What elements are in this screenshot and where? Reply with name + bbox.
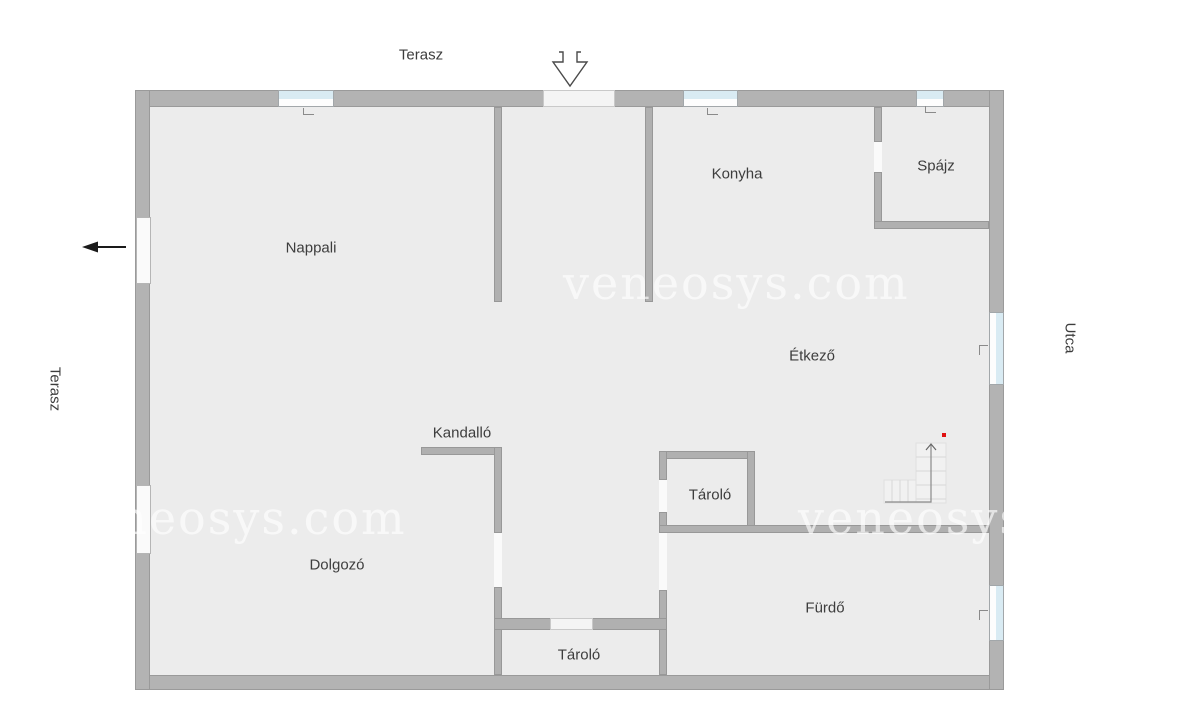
window-handle-icon (979, 610, 988, 620)
arrow-left-icon (82, 240, 128, 254)
room-label-living: Nappali (286, 240, 337, 257)
entrance-arrow-icon (548, 50, 592, 90)
interior-wall-center-vertical (494, 447, 502, 533)
exterior-wall-bottom (135, 675, 1004, 690)
exterior-wall-left (135, 90, 150, 690)
interior-wall-bathroom-left (659, 590, 667, 675)
window-handle-icon (979, 345, 988, 355)
label-terrace-left: Terasz (47, 367, 64, 411)
interior-wall-storage-top (659, 451, 755, 459)
room-label-fireplace: Kandalló (433, 425, 491, 442)
red-dot (942, 433, 946, 437)
window-top-left (278, 90, 334, 107)
label-street: Utca (1062, 323, 1079, 354)
storage-door-opening (659, 480, 667, 512)
storage-bottom-door-opening (550, 618, 593, 630)
window-dining (989, 312, 1004, 385)
interior-wall-storage-left (659, 451, 667, 480)
window-handle-icon (925, 106, 936, 113)
room-label-kitchen: Konyha (712, 166, 763, 183)
interior-wall-hall-left (494, 107, 502, 302)
window-bathroom (989, 585, 1004, 641)
window-pantry (916, 90, 944, 107)
interior-wall-fireplace (421, 447, 502, 455)
interior-wall-center-vertical (494, 587, 502, 675)
floor-plan-canvas: Nappali Konyha Spájz Étkező Kandalló Tár… (0, 0, 1187, 721)
interior-wall-pantry-left (874, 107, 882, 142)
interior-wall-pantry-bottom (874, 221, 989, 229)
pantry-door-opening (874, 142, 882, 172)
room-label-dining: Étkező (789, 348, 835, 365)
room-label-bathroom: Fürdő (805, 600, 844, 617)
entrance-door-opening (543, 90, 615, 107)
label-terrace-top: Terasz (399, 47, 443, 64)
interior-wall-bathroom-top (659, 525, 989, 533)
bathroom-door-opening (659, 533, 667, 590)
room-label-study: Dolgozó (309, 557, 364, 574)
terrace-door-opening (136, 217, 151, 284)
interior-wall-storage-right (747, 451, 755, 533)
window-handle-icon (303, 108, 314, 115)
window-study (136, 485, 151, 554)
floor-area (150, 107, 989, 675)
room-label-storage-bottom: Tároló (558, 647, 601, 664)
room-label-storage-middle: Tároló (689, 487, 732, 504)
interior-wall-hall-right (645, 107, 653, 302)
door-opening-study (494, 533, 502, 587)
room-label-pantry: Spájz (917, 158, 955, 175)
stairs-icon (878, 428, 954, 508)
interior-wall-pantry-left (874, 172, 882, 228)
window-kitchen (683, 90, 738, 107)
window-handle-icon (707, 108, 718, 115)
